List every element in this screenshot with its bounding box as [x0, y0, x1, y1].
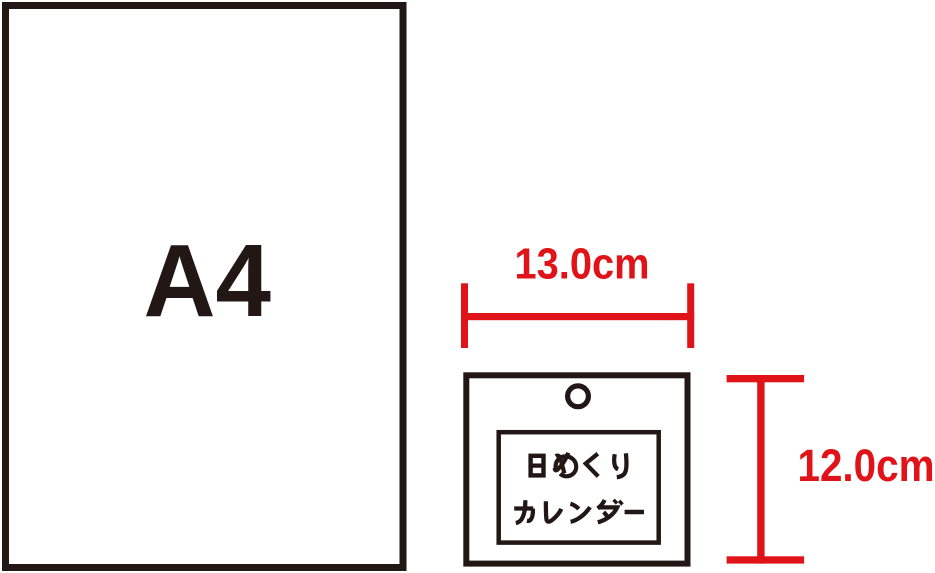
svg-text:A4: A4	[144, 223, 272, 338]
svg-text:12.0cm: 12.0cm	[798, 440, 935, 491]
svg-text:13.0cm: 13.0cm	[515, 240, 650, 289]
